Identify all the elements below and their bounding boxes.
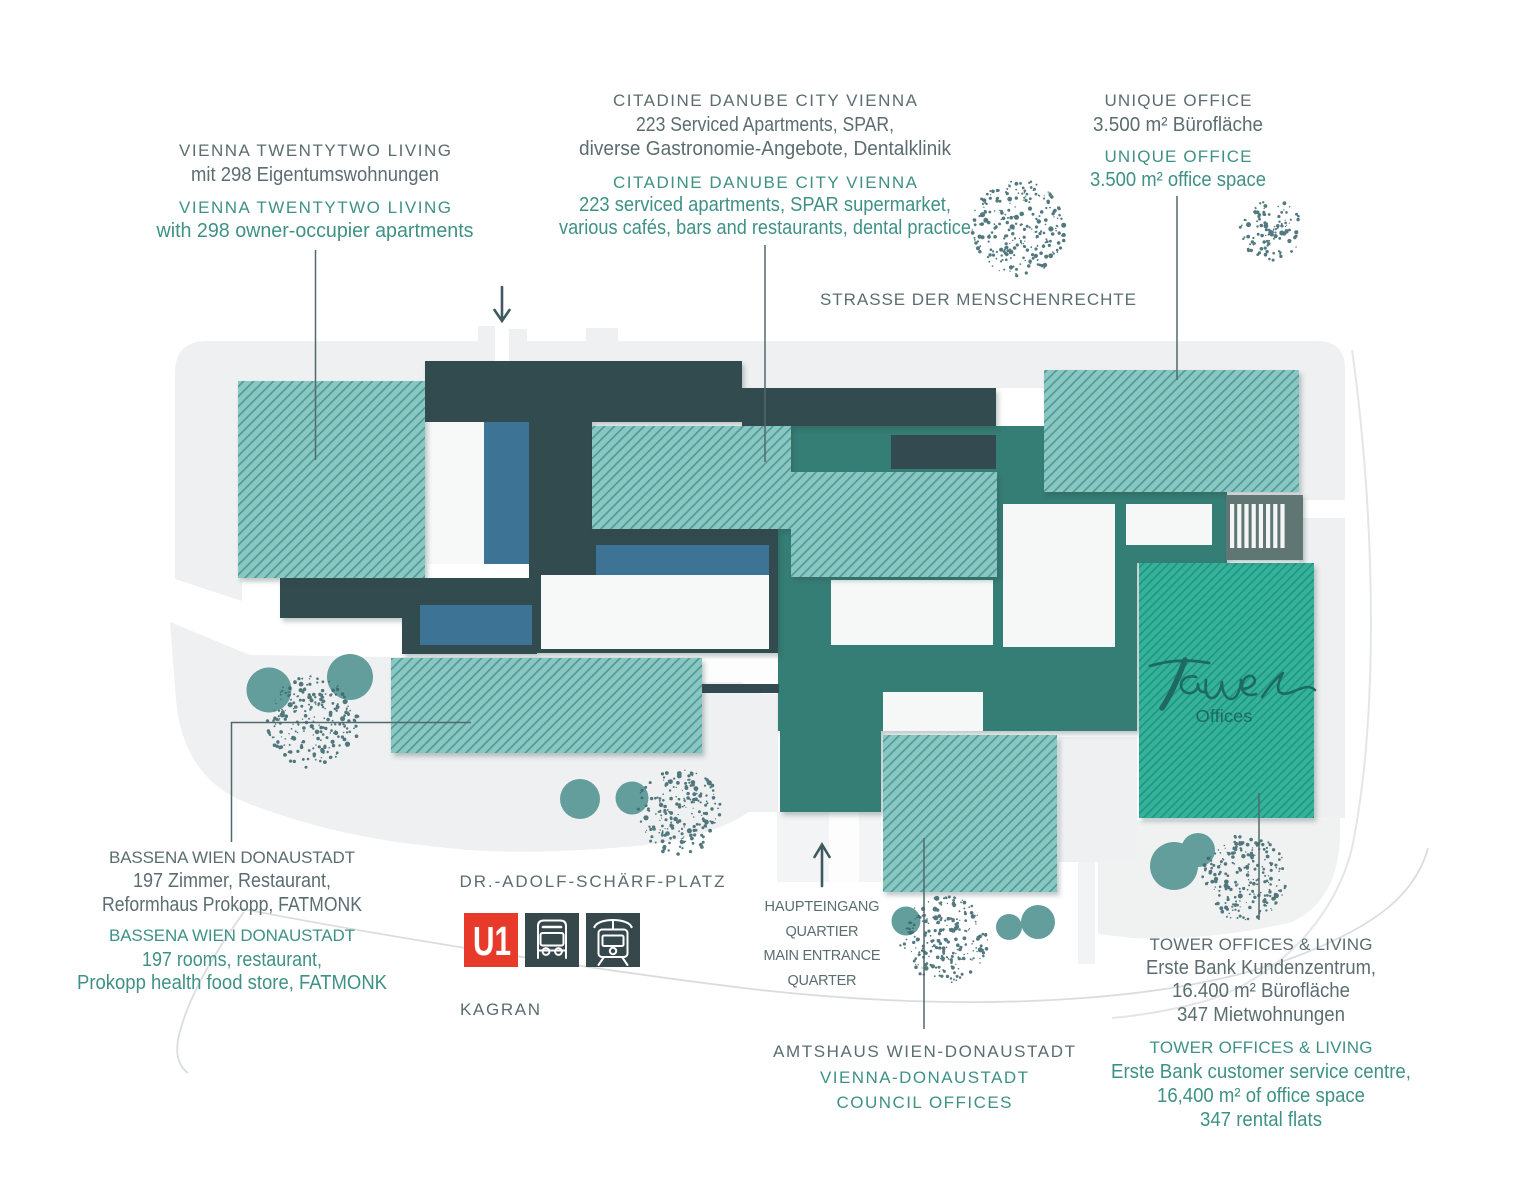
svg-text:Prokopp health food store, FAT: Prokopp health food store, FATMONK [77, 972, 388, 994]
svg-text:DR.-ADOLF-SCHÄRF-PLATZ: DR.-ADOLF-SCHÄRF-PLATZ [460, 872, 725, 891]
svg-text:BASSENA WIEN DONAUSTADT: BASSENA WIEN DONAUSTADT [109, 848, 355, 867]
svg-text:347 rental flats: 347 rental flats [1200, 1109, 1322, 1131]
svg-text:diverse Gastronomie-Angebote,: diverse Gastronomie-Angebote, Dentalklin… [579, 138, 952, 160]
svg-text:VIENNA TWENTYTWO LIVING: VIENNA TWENTYTWO LIVING [179, 198, 451, 217]
svg-text:QUARTIER: QUARTIER [786, 924, 859, 940]
svg-text:BASSENA WIEN DONAUSTADT: BASSENA WIEN DONAUSTADT [109, 926, 355, 945]
svg-text:AMTSHAUS WIEN-DONAUSTADT: AMTSHAUS WIEN-DONAUSTADT [773, 1042, 1075, 1061]
svg-text:U1: U1 [473, 918, 511, 964]
svg-text:3.500 m² Bürofläche: 3.500 m² Bürofläche [1093, 114, 1263, 136]
svg-text:197 rooms, restaurant,: 197 rooms, restaurant, [142, 949, 322, 971]
svg-text:VIENNA TWENTYTWO LIVING: VIENNA TWENTYTWO LIVING [179, 141, 451, 160]
svg-text:TOWER OFFICES & LIVING: TOWER OFFICES & LIVING [1150, 1038, 1373, 1057]
svg-text:MAIN ENTRANCE: MAIN ENTRANCE [764, 948, 881, 964]
svg-text:UNIQUE OFFICE: UNIQUE OFFICE [1105, 147, 1252, 166]
svg-text:with 298 owner-occupier apartm: with 298 owner-occupier apartments [156, 220, 474, 242]
svg-text:Reformhaus Prokopp, FATMONK: Reformhaus Prokopp, FATMONK [102, 894, 363, 916]
svg-text:KAGRAN: KAGRAN [460, 1000, 540, 1019]
svg-text:UNIQUE OFFICE: UNIQUE OFFICE [1105, 91, 1252, 110]
svg-text:Erste Bank customer service ce: Erste Bank customer service centre, [1111, 1061, 1411, 1083]
svg-text:Erste Bank Kundenzentrum,: Erste Bank Kundenzentrum, [1146, 957, 1376, 979]
svg-text:VIENNA-DONAUSTADT: VIENNA-DONAUSTADT [820, 1068, 1028, 1087]
svg-text:mit 298 Eigentumswohnungen: mit 298 Eigentumswohnungen [191, 164, 439, 186]
svg-text:223 Serviced Apartments, SPAR,: 223 Serviced Apartments, SPAR, [636, 114, 894, 136]
svg-text:Offices: Offices [1196, 706, 1253, 726]
svg-text:197 Zimmer, Restaurant,: 197 Zimmer, Restaurant, [133, 870, 331, 892]
svg-text:CITADINE DANUBE CITY VIENNA: CITADINE DANUBE CITY VIENNA [613, 91, 918, 110]
svg-text:347 Mietwohnungen: 347 Mietwohnungen [1177, 1004, 1345, 1026]
svg-text:CITADINE DANUBE CITY VIENNA: CITADINE DANUBE CITY VIENNA [613, 173, 918, 192]
svg-text:TOWER OFFICES & LIVING: TOWER OFFICES & LIVING [1150, 935, 1373, 954]
svg-text:16,400 m² of office space: 16,400 m² of office space [1157, 1085, 1365, 1107]
svg-text:STRASSE DER MENSCHENRECHTE: STRASSE DER MENSCHENRECHTE [820, 290, 1136, 309]
svg-text:16.400 m² Bürofläche: 16.400 m² Bürofläche [1172, 980, 1350, 1002]
svg-text:various cafés, bars and restau: various cafés, bars and restaurants, den… [559, 217, 971, 239]
svg-text:COUNCIL OFFICES: COUNCIL OFFICES [837, 1093, 1012, 1112]
svg-text:3.500 m² office space: 3.500 m² office space [1090, 169, 1266, 191]
svg-text:QUARTER: QUARTER [788, 973, 857, 989]
svg-text:HAUPTEINGANG: HAUPTEINGANG [765, 899, 880, 915]
svg-text:223 serviced apartments, SPAR: 223 serviced apartments, SPAR supermarke… [579, 194, 951, 216]
